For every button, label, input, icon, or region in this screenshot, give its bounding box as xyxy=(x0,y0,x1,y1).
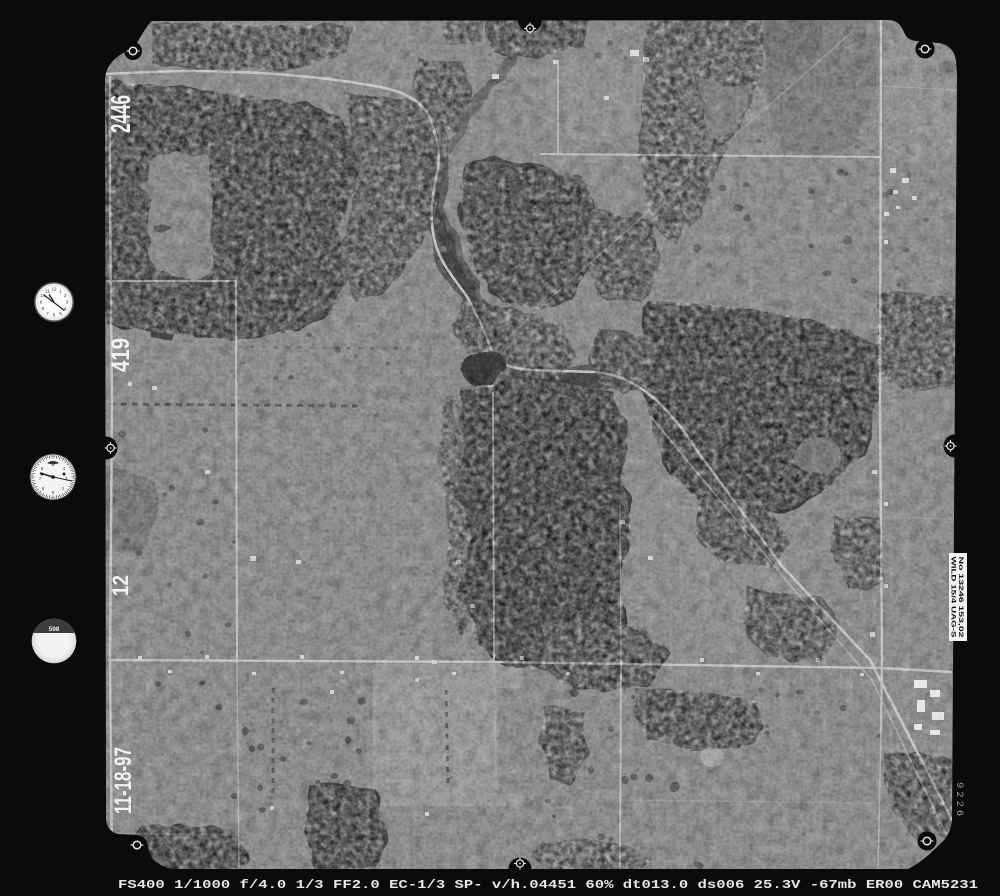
svg-text:419: 419 xyxy=(107,338,135,372)
svg-text:8: 8 xyxy=(42,306,45,311)
svg-text:No 13246 153,02: No 13246 153,02 xyxy=(957,557,964,639)
svg-text:5: 5 xyxy=(59,311,62,316)
svg-text:7: 7 xyxy=(46,311,49,316)
svg-text:6: 6 xyxy=(53,313,56,318)
svg-text:598: 598 xyxy=(49,626,60,633)
svg-text:2: 2 xyxy=(64,293,67,298)
svg-text:9: 9 xyxy=(40,300,43,305)
svg-text:11: 11 xyxy=(45,288,50,293)
svg-text:2446: 2446 xyxy=(105,95,136,133)
svg-text:FS400 1/1000 f/4.0 1/3 FF2.: FS400 1/1000 f/4.0 1/3 FF2.0 EC-1/3 SP- … xyxy=(118,878,978,892)
svg-text:WILD 15/4 UAG-S: WILD 15/4 UAG-S xyxy=(950,557,957,639)
svg-text:12: 12 xyxy=(108,575,133,596)
svg-text:9226: 9226 xyxy=(953,782,965,819)
svg-text:1: 1 xyxy=(59,288,62,293)
svg-text:11-18-97: 11-18-97 xyxy=(110,747,137,814)
svg-text:3: 3 xyxy=(66,300,69,305)
svg-text:12: 12 xyxy=(51,287,57,292)
